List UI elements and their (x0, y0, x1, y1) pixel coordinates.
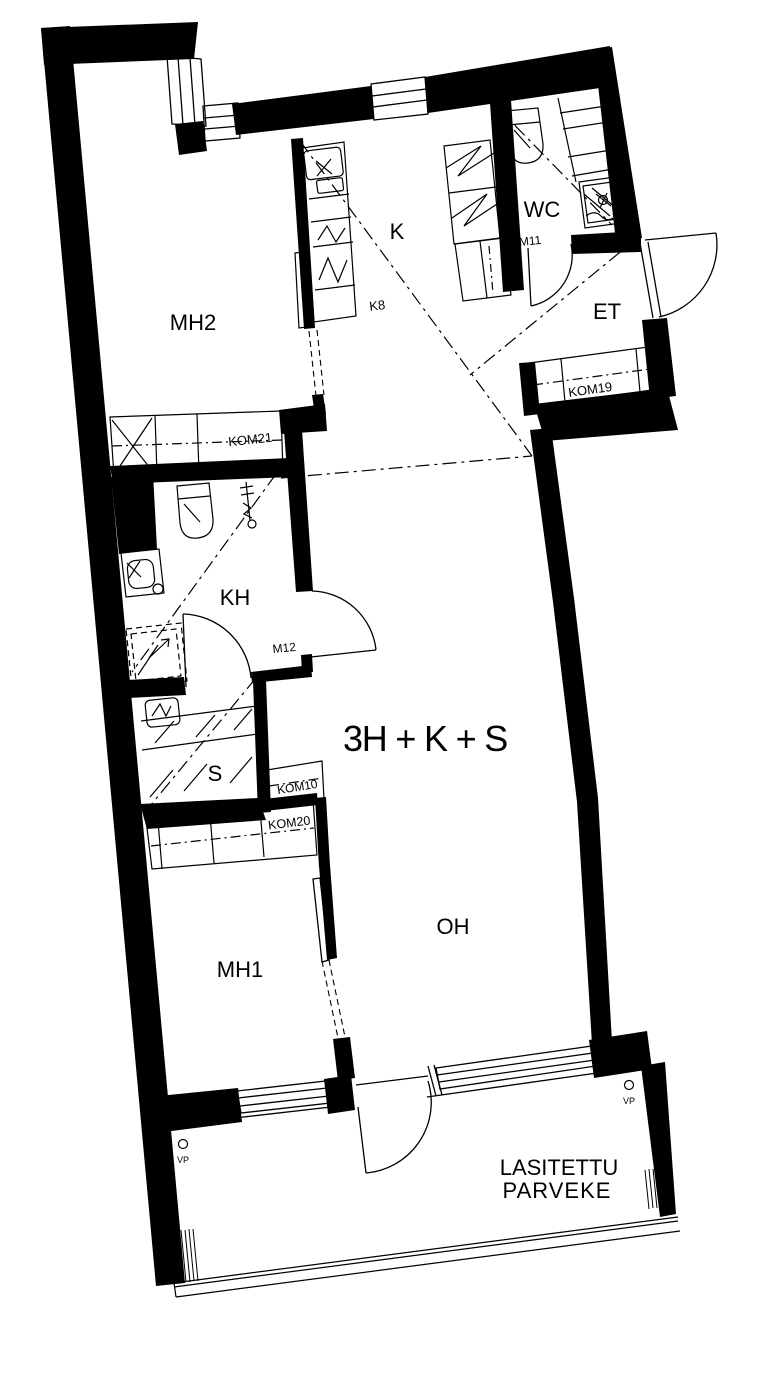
svg-text:VP: VP (177, 1155, 189, 1165)
svg-text:ET: ET (593, 299, 621, 324)
svg-text:OH: OH (437, 914, 470, 939)
svg-text:MH1: MH1 (217, 957, 263, 982)
svg-text:PARVEKE: PARVEKE (503, 1178, 612, 1203)
svg-text:WC: WC (524, 197, 561, 222)
svg-text:K: K (390, 219, 405, 244)
svg-text:VP: VP (623, 1096, 635, 1106)
svg-text:M12: M12 (272, 640, 297, 656)
svg-text:LASITETTU: LASITETTU (500, 1155, 619, 1180)
svg-text:MH2: MH2 (170, 310, 216, 335)
svg-text:KH: KH (220, 585, 251, 610)
svg-text:K8: K8 (368, 297, 386, 314)
svg-text:3H + K + S: 3H + K + S (343, 718, 507, 759)
svg-text:S: S (208, 761, 223, 786)
svg-text:M11: M11 (518, 233, 542, 249)
